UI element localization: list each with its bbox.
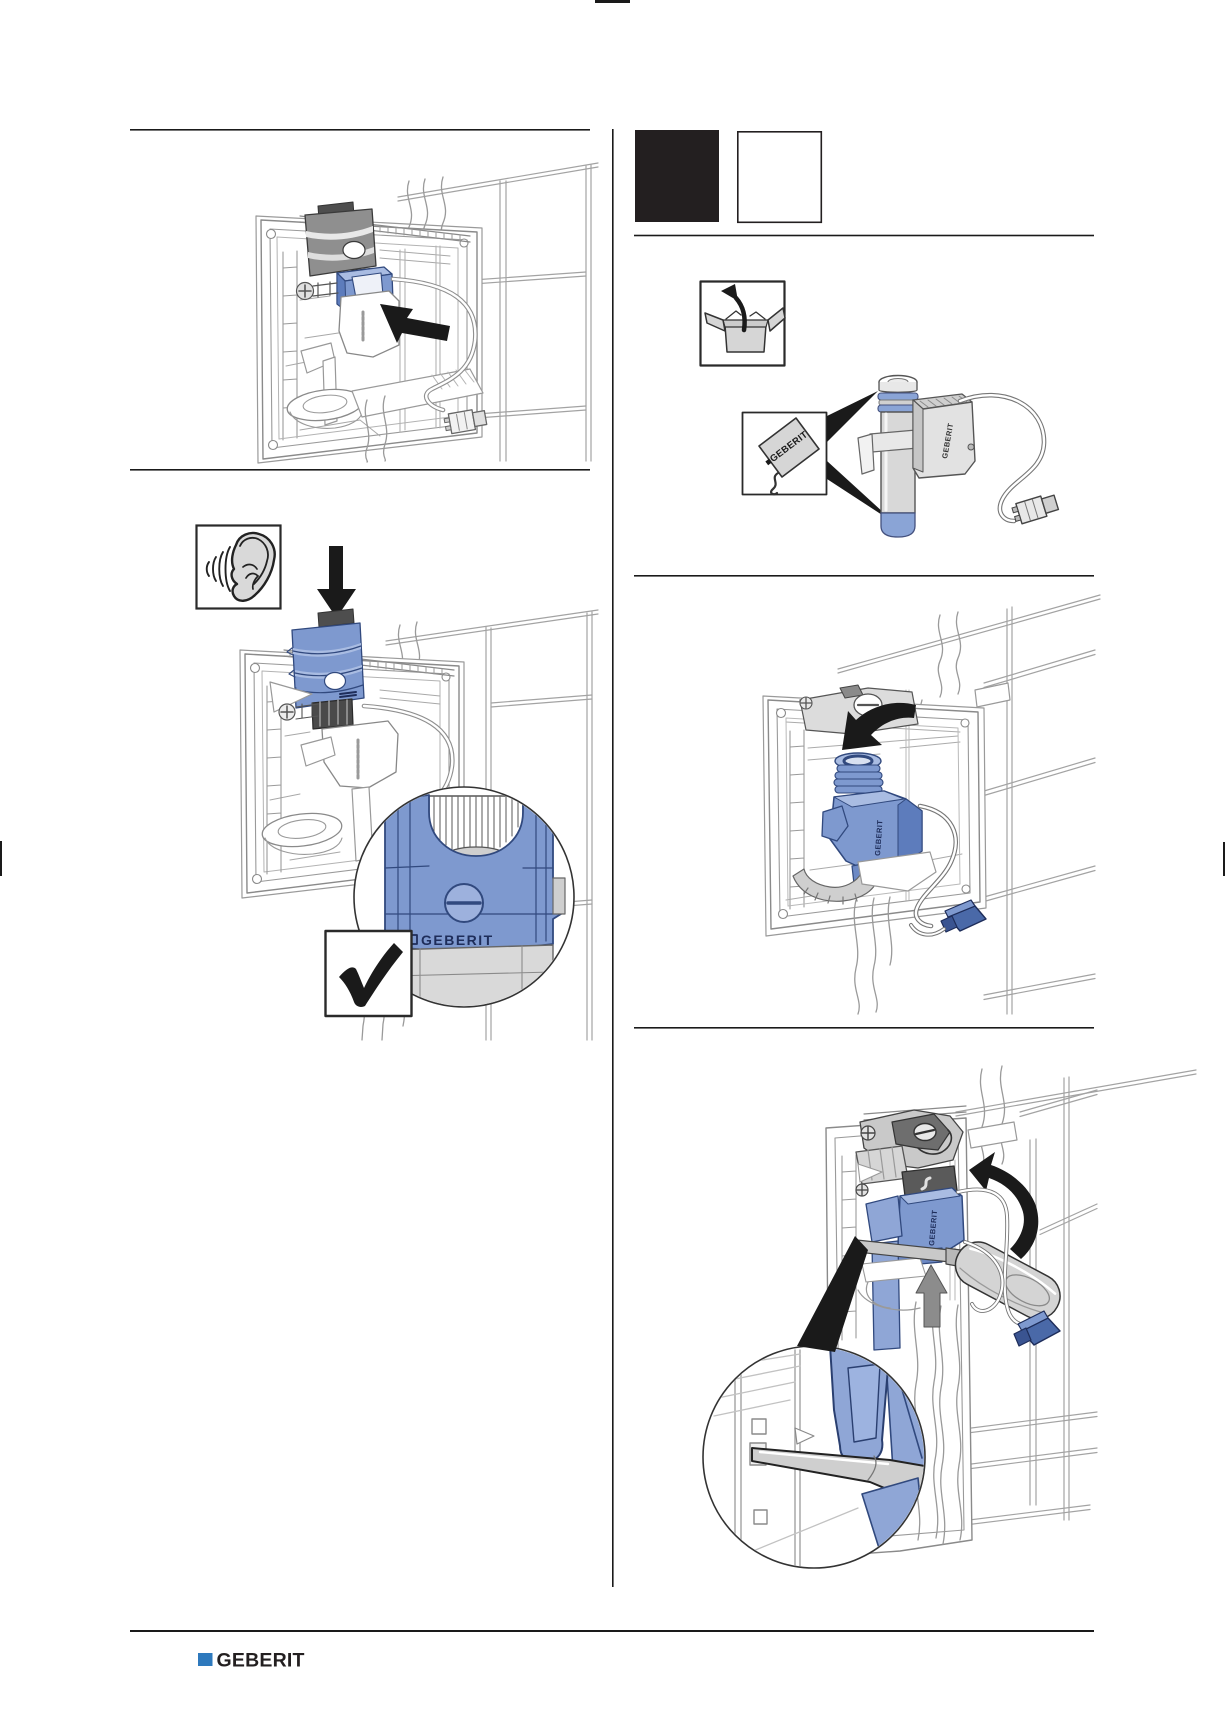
svg-text:GEBERIT: GEBERIT [217,1650,305,1672]
svg-text:GEBERIT: GEBERIT [421,932,494,948]
